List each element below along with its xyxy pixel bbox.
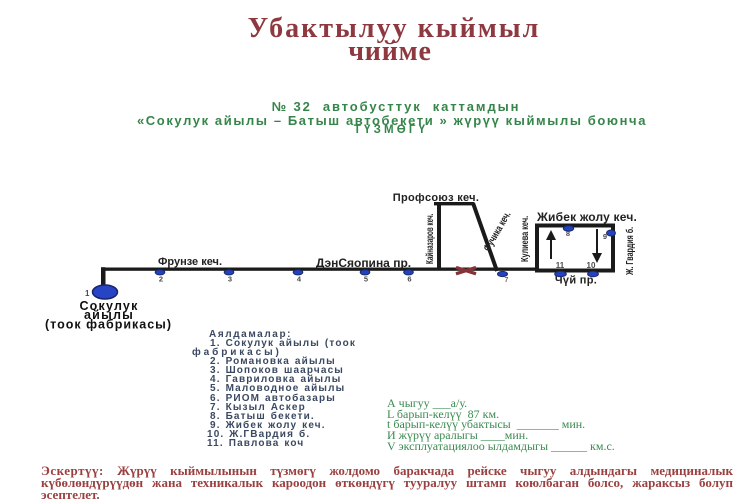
- svg-text:4: 4: [297, 275, 302, 284]
- svg-text:10: 10: [587, 261, 596, 270]
- svg-text:(тоок фабрикасы): (тоок фабрикасы): [45, 318, 172, 332]
- svg-text:Ж. Гвардия б.: Ж. Гвардия б.: [624, 227, 636, 276]
- svg-text:Профсоюз кеч.: Профсоюз кеч.: [393, 192, 479, 204]
- svg-text:Кулиева кеч.: Кулиева кеч.: [519, 216, 531, 262]
- svg-text:8: 8: [566, 229, 570, 238]
- svg-text:11: 11: [556, 261, 565, 270]
- svg-text:ДэнСяопина пр.: ДэнСяопина пр.: [316, 256, 411, 270]
- svg-text:5: 5: [364, 275, 368, 284]
- svg-text:Фрунзе кеч.: Фрунзе кеч.: [158, 256, 222, 268]
- svg-text:2: 2: [159, 275, 163, 284]
- svg-text:Жибек жолу кеч.: Жибек жолу кеч.: [536, 210, 637, 224]
- svg-text:Фучика кеч.: Фучика кеч.: [481, 209, 513, 253]
- svg-text:9: 9: [603, 232, 607, 241]
- svg-text:6: 6: [407, 275, 411, 284]
- svg-text:Кайназаров кеч.: Кайназаров кеч.: [423, 214, 435, 264]
- svg-text:7: 7: [505, 277, 509, 284]
- svg-text:3: 3: [228, 275, 232, 284]
- svg-text:1: 1: [85, 289, 90, 298]
